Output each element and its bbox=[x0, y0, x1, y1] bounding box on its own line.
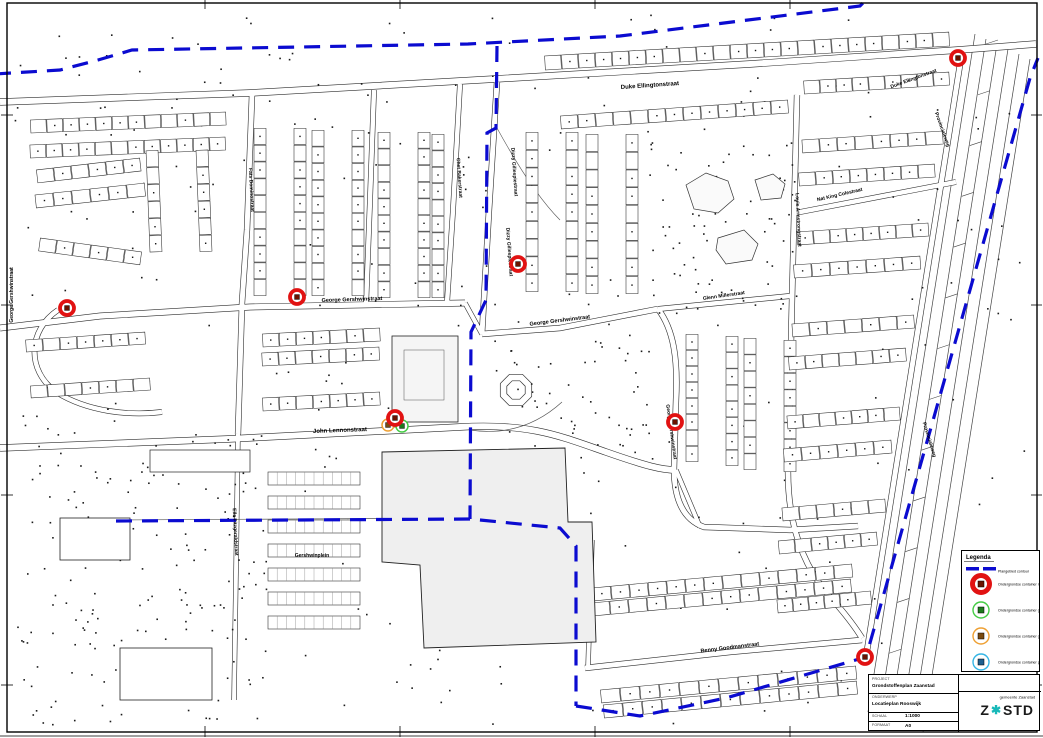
map-canvas: Duke EllingtonstraatDuke Ellingtonstraat… bbox=[0, 0, 1043, 738]
container-marker-rest bbox=[858, 650, 872, 664]
titleblock-rule bbox=[958, 691, 1041, 692]
titleblock-divider bbox=[958, 675, 959, 732]
legend-item-label: Ondergrondse container papier bbox=[998, 660, 1039, 664]
street-label: Gershwinplein bbox=[295, 553, 329, 559]
scale-label: SCHAAL bbox=[872, 714, 887, 718]
logo-letters: STD bbox=[1003, 702, 1034, 718]
format-value: A0 bbox=[905, 723, 911, 728]
legend-item-glas: Ondergrondse container glas bbox=[973, 602, 1039, 618]
street-label: Dizzy Gillespiestraat bbox=[509, 147, 518, 196]
logo-letter: Z bbox=[980, 702, 990, 718]
container-marker-rest bbox=[511, 257, 525, 271]
subject-value: Locatieplan Rooswijk bbox=[872, 701, 921, 706]
container-marker-rest bbox=[668, 415, 682, 429]
street-label: Ella Fitzgeraldstraat bbox=[231, 508, 239, 556]
municipality-text: gemeente Zaanstad bbox=[999, 695, 1035, 700]
legend-item-label: Plangebied contour bbox=[998, 569, 1030, 573]
legend-item-gft: Ondergrondse container gft bbox=[973, 628, 1039, 644]
title-block: PROJECT Grondstoffenplan Zaanstad ONDERW… bbox=[868, 674, 1040, 731]
legend-graphics: LegendaPlangebied contourOndergrondse co… bbox=[962, 551, 1039, 671]
container-marker-rest bbox=[388, 411, 402, 425]
legend-item-papier: Ondergrondse container papier bbox=[973, 654, 1039, 670]
legend-title: Legenda bbox=[966, 555, 991, 561]
legend-item-label: Ondergrondse container restafval bbox=[998, 582, 1039, 586]
titleblock-rule bbox=[869, 721, 958, 722]
legend-panel: LegendaPlangebied contourOndergrondse co… bbox=[961, 550, 1040, 672]
park-features bbox=[500, 173, 785, 406]
container-marker-rest bbox=[290, 290, 304, 304]
titleblock-rule bbox=[869, 693, 958, 694]
logo-emblem-icon: ✱ bbox=[991, 703, 1002, 717]
legend-item-label: Ondergrondse container gft bbox=[998, 634, 1039, 638]
legend-item-boundary: Plangebied contour bbox=[966, 567, 1030, 573]
map-sheet: Duke EllingtonstraatDuke Ellingtonstraat… bbox=[0, 0, 1043, 738]
street-label: George Gershwinstraat bbox=[9, 267, 15, 323]
zaanstad-logo: Z ✱ STD bbox=[980, 702, 1034, 718]
street-label: Duke Ellingtonstraat bbox=[621, 81, 680, 91]
buildings bbox=[26, 32, 950, 718]
subject-label: ONDERWERP bbox=[872, 695, 897, 699]
container-marker-rest bbox=[951, 51, 965, 65]
project-label: PROJECT bbox=[872, 677, 890, 681]
legend-item-label: Ondergrondse container glas bbox=[998, 608, 1039, 612]
scale-value: 1:1000 bbox=[905, 713, 920, 718]
container-marker-rest bbox=[60, 301, 74, 315]
format-label: FORMAAT bbox=[872, 723, 890, 727]
legend-item-rest: Ondergrondse container restafval bbox=[973, 576, 1040, 593]
project-value: Grondstoffenplan Zaanstad bbox=[872, 683, 935, 688]
